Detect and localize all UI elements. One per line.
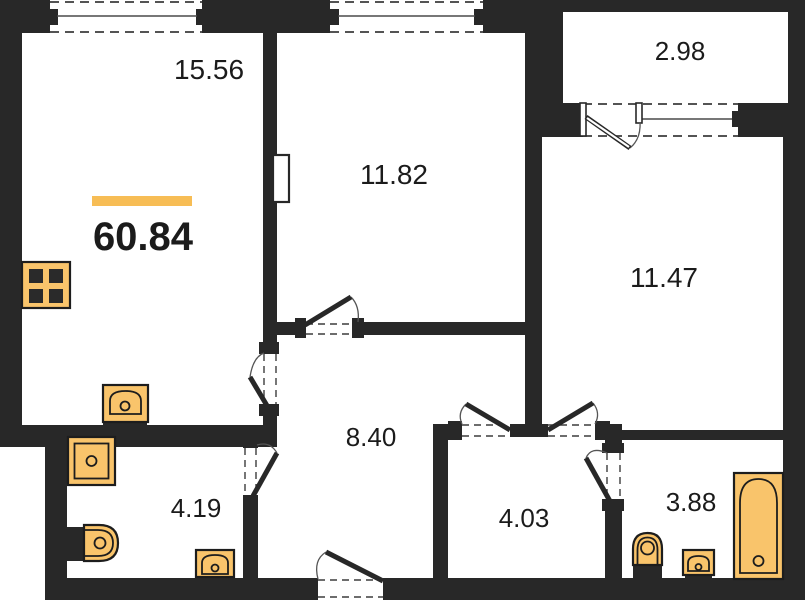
windows [50,2,738,136]
washbasin-icon [683,550,714,575]
wall [525,33,542,437]
balcony-door-leaf-inner [587,118,629,147]
window-jamb [330,9,339,25]
area-label-bedroom-2: 11.47 [630,262,698,293]
door-jamb [295,318,306,338]
balcony-door-frame [580,103,586,136]
door-leaf [305,297,351,325]
burner [49,269,63,283]
area-label-bathroom-1: 4.19 [171,493,222,523]
area-labels: 60.84 15.56 11.82 2.98 11.47 8.40 4.19 4… [93,36,716,533]
wall [563,0,805,12]
wall [45,447,67,600]
washbasin-icon [196,550,234,577]
door-swing-arc [250,353,264,377]
balcony-door-frame [636,103,642,123]
burner [29,269,43,283]
window-jamb [474,9,483,25]
door-jamb [448,421,462,440]
wall [540,103,583,137]
toilet-icon [84,525,118,561]
window-jamb [732,111,742,127]
fixtures [22,262,783,579]
total-area-accent-bar [92,196,192,206]
wall [45,578,308,600]
wall [510,424,548,437]
wall [605,503,622,578]
wall [243,495,258,578]
wall [243,438,258,448]
door-jamb [595,421,610,440]
door-swing-arc [586,450,607,458]
wall [738,103,788,137]
bathtub-icon [734,473,783,579]
door-swing-arc [593,403,598,424]
wall [788,0,805,140]
door-leaf [466,404,510,430]
shower-icon [68,437,115,485]
wall [364,322,527,335]
radiator-niche [273,155,289,202]
area-label-hallway: 8.40 [346,422,397,452]
door-leaf [548,403,593,430]
floor-plan: 60.84 15.56 11.82 2.98 11.47 8.40 4.19 4… [0,0,805,600]
stove-icon [22,262,70,308]
door-jamb [602,499,624,511]
floor-plan-canvas: 60.84 15.56 11.82 2.98 11.47 8.40 4.19 4… [0,0,805,600]
wall [433,424,448,578]
kitchen-sink-icon [103,385,148,422]
window-jamb [196,9,205,25]
entry-door-leaf [326,552,383,581]
wall [395,578,805,600]
burner [49,289,63,303]
wall [263,416,277,427]
wall [622,430,783,440]
door-jamb [306,578,318,600]
area-label-inner-hall: 4.03 [499,503,550,533]
door-jamb [259,342,279,354]
area-label-balcony: 2.98 [655,36,706,66]
window-jamb [49,9,58,25]
wall [783,137,805,600]
door-swing-arc [460,404,466,424]
total-area-label: 60.84 [93,215,194,259]
wall [202,0,330,33]
door-swing-arc [317,552,326,579]
area-label-bathroom-2: 3.88 [666,487,717,517]
area-label-bedroom-1: 11.82 [360,159,428,190]
door-jamb [602,443,624,453]
toilet-icon [633,533,662,565]
wall [0,0,22,440]
door-jamb [383,578,395,600]
door-swing-arc [630,122,640,148]
burner [29,289,43,303]
area-label-living-kitchen: 15.56 [174,54,244,85]
